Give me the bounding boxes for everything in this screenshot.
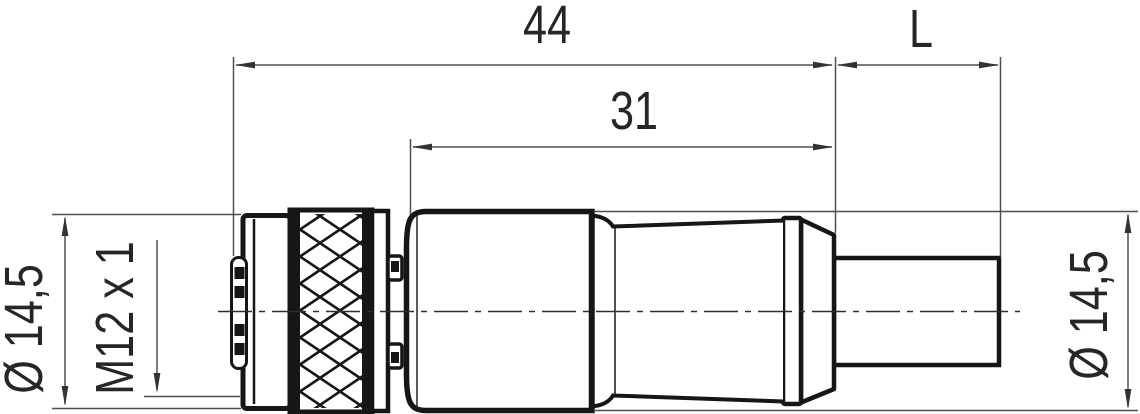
insert-notch: [235, 324, 245, 336]
connector-drawing: 44 31 L Ø 14,5 M12 x 1 Ø 14,5: [0, 0, 1140, 414]
rear-diameter-label: Ø 14,5: [1060, 250, 1120, 380]
technical-drawing-canvas: 44 31 L Ø 14,5 M12 x 1 Ø 14,5: [0, 0, 1140, 414]
thread-label: M12 x 1: [86, 241, 146, 395]
latch-clip-top: [388, 256, 402, 280]
body-length-label: 31: [610, 82, 658, 142]
cable-length-label: L: [909, 0, 933, 59]
front-diameter-label: Ø 14,5: [0, 264, 54, 394]
latch-clip-bottom: [388, 344, 402, 368]
overall-length-label: 44: [523, 0, 571, 55]
insert-notch: [235, 343, 245, 355]
insert-notch: [235, 267, 245, 279]
insert-notch: [235, 286, 245, 298]
